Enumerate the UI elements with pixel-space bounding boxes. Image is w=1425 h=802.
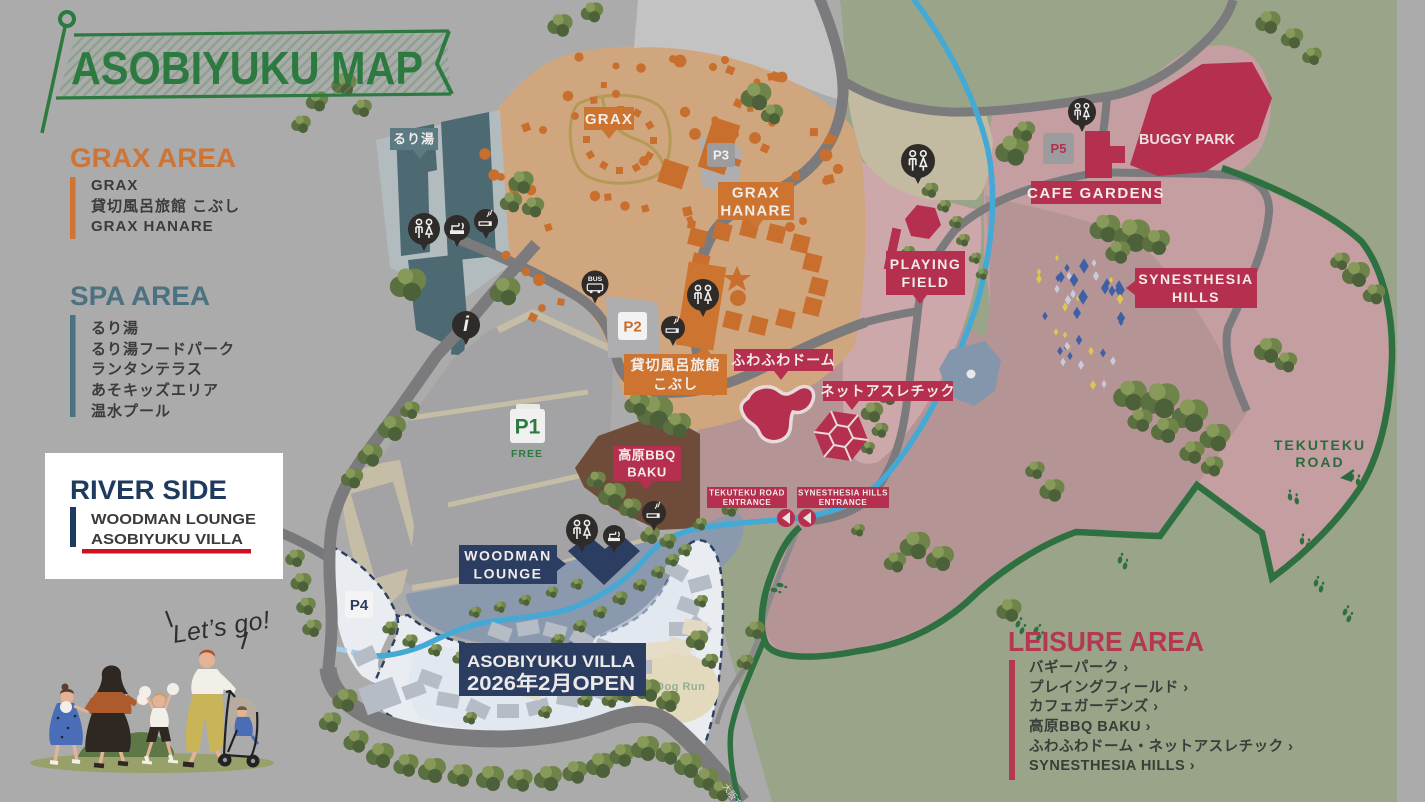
svg-text:ふわふわドーム: ふわふわドーム (731, 352, 836, 368)
svg-text:ASOBIYUKU VILLA: ASOBIYUKU VILLA (467, 653, 635, 671)
svg-text:P1: P1 (515, 416, 541, 439)
svg-text:貸切風呂旅館: 貸切風呂旅館 (630, 357, 721, 373)
svg-text:P5: P5 (1051, 141, 1067, 156)
svg-text:FREE: FREE (511, 448, 543, 460)
svg-text:TEKUTEKU ROAD: TEKUTEKU ROAD (709, 489, 785, 498)
svg-text:P2: P2 (623, 318, 641, 335)
svg-text:TEKUTEKU: TEKUTEKU (1274, 437, 1366, 453)
svg-text:BUS: BUS (588, 276, 603, 283)
svg-text:CAFE GARDENS: CAFE GARDENS (1027, 185, 1165, 202)
svg-text:GRAX: GRAX (91, 177, 138, 194)
svg-text:GRAX: GRAX (732, 184, 780, 201)
svg-text:Dog Run: Dog Run (656, 681, 705, 693)
svg-text:ROAD: ROAD (1295, 454, 1344, 470)
svg-text:こぶし: こぶし (653, 376, 698, 392)
svg-text:プレイングフィールド ›: プレイングフィールド › (1029, 678, 1189, 696)
svg-text:GRAX HANARE: GRAX HANARE (91, 218, 214, 235)
svg-text:温水プール: 温水プール (91, 402, 171, 420)
svg-text:WOODMAN: WOODMAN (464, 548, 552, 564)
svg-text:SYNESTHESIA HILLS: SYNESTHESIA HILLS (798, 489, 888, 498)
svg-text:HANARE: HANARE (720, 202, 791, 219)
svg-text:あそキッズエリア: あそキッズエリア (91, 381, 219, 399)
svg-text:ASOBIYUKU VILLA: ASOBIYUKU VILLA (91, 531, 243, 548)
svg-text:FIELD: FIELD (902, 274, 950, 290)
svg-text:ランタンテラス: ランタンテラス (91, 361, 203, 378)
svg-text:ENTRANCE: ENTRANCE (819, 498, 868, 507)
svg-text:BAKU: BAKU (627, 465, 667, 480)
svg-text:高原BBQ BAKU ›: 高原BBQ BAKU › (1029, 717, 1151, 735)
svg-text:HILLS: HILLS (1172, 289, 1220, 305)
svg-text:SYNESTHESIA HILLS ›: SYNESTHESIA HILLS › (1029, 758, 1195, 774)
svg-text:カフェガーデンズ ›: カフェガーデンズ › (1029, 697, 1159, 715)
svg-text:ネットアスレチック: ネットアスレチック (821, 383, 956, 399)
svg-text:PLAYING: PLAYING (890, 256, 961, 272)
svg-text:バギーパーク ›: バギーパーク › (1029, 659, 1129, 676)
svg-text:ASOBIYUKU MAP: ASOBIYUKU MAP (71, 42, 423, 94)
svg-text:LOUNGE: LOUNGE (474, 566, 543, 582)
svg-text:BUGGY PARK: BUGGY PARK (1139, 131, 1235, 148)
svg-text:貸切風呂旅館 こぶし: 貸切風呂旅館 こぶし (91, 197, 240, 215)
svg-text:GRAX AREA: GRAX AREA (70, 143, 236, 173)
svg-text:GRAX: GRAX (585, 111, 633, 128)
svg-text:RIVER SIDE: RIVER SIDE (70, 475, 227, 505)
svg-text:るり湯: るり湯 (393, 132, 435, 147)
svg-text:SYNESTHESIA: SYNESTHESIA (1138, 271, 1253, 287)
svg-text:ふわふわドーム・ネットアスレチック ›: ふわふわドーム・ネットアスレチック › (1029, 738, 1293, 755)
svg-text:P3: P3 (713, 148, 729, 163)
svg-text:ENTRANCE: ENTRANCE (723, 498, 772, 507)
svg-text:るり湯フードパーク: るり湯フードパーク (91, 341, 235, 358)
svg-text:P4: P4 (350, 597, 369, 614)
svg-text:2026年2月OPEN: 2026年2月OPEN (467, 671, 635, 695)
svg-text:SPA AREA: SPA AREA (70, 281, 210, 311)
svg-text:高原BBQ: 高原BBQ (618, 448, 675, 463)
svg-text:るり湯: るり湯 (91, 320, 139, 337)
svg-text:WOODMAN LOUNGE: WOODMAN LOUNGE (91, 511, 256, 528)
svg-text:LEISURE AREA: LEISURE AREA (1008, 626, 1204, 657)
